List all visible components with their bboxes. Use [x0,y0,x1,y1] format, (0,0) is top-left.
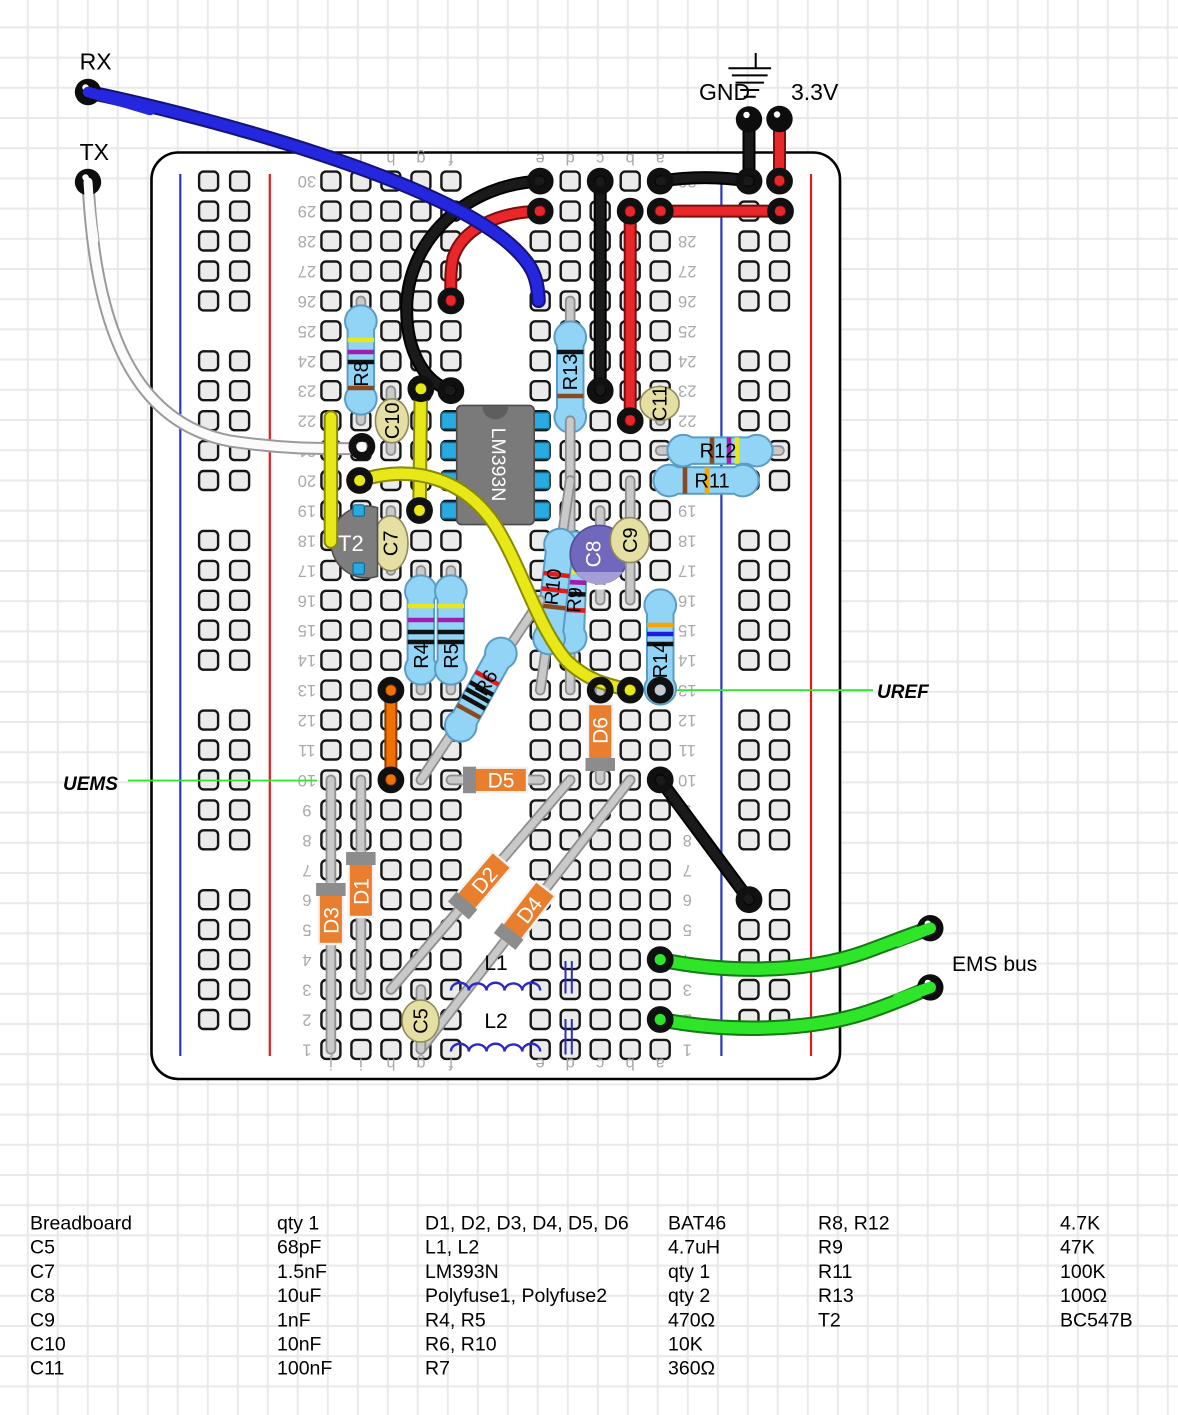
svg-text:f: f [448,1055,453,1073]
svg-text:17: 17 [678,561,696,579]
svg-text:22: 22 [298,412,316,430]
svg-text:i: i [359,1055,363,1073]
svg-text:19: 19 [678,502,696,520]
svg-text:BAT46: BAT46 [668,1213,726,1235]
svg-text:28: 28 [298,232,316,250]
svg-text:22: 22 [678,412,696,430]
svg-text:a: a [655,150,665,168]
svg-text:12: 12 [678,711,696,729]
svg-text:15: 15 [678,621,696,639]
svg-text:C11: C11 [30,1358,64,1380]
svg-text:R14: R14 [650,642,672,679]
svg-text:30: 30 [298,172,316,190]
svg-text:8: 8 [302,831,311,849]
svg-text:C9: C9 [620,527,642,553]
svg-text:b: b [626,1055,635,1073]
svg-text:qty 1: qty 1 [668,1261,710,1283]
svg-text:e: e [536,1055,545,1073]
svg-text:R8, R12: R8, R12 [818,1213,890,1235]
svg-text:17: 17 [298,561,316,579]
svg-text:UREF: UREF [877,682,930,703]
svg-text:23: 23 [678,382,696,400]
svg-text:100nF: 100nF [277,1358,332,1380]
svg-text:11: 11 [679,741,696,759]
svg-text:LM393N: LM393N [487,428,509,502]
svg-text:c: c [596,150,604,168]
svg-text:26: 26 [298,292,316,310]
svg-text:5: 5 [302,921,311,939]
svg-text:27: 27 [298,262,316,280]
svg-text:L2: L2 [484,1010,507,1033]
svg-text:1nF: 1nF [277,1309,311,1331]
svg-text:4: 4 [302,951,311,969]
svg-text:4.7uH: 4.7uH [668,1237,720,1259]
svg-text:26: 26 [678,292,696,310]
svg-text:Polyfuse1, Polyfuse2: Polyfuse1, Polyfuse2 [425,1285,607,1307]
svg-text:C11: C11 [650,386,672,421]
svg-text:R7: R7 [425,1358,450,1380]
svg-text:3: 3 [683,981,692,999]
svg-text:16: 16 [678,591,696,609]
svg-text:R11: R11 [694,471,729,493]
svg-text:D1: D1 [350,878,373,905]
svg-text:L1, L2: L1, L2 [425,1237,479,1259]
svg-text:18: 18 [678,531,696,549]
svg-text:10K: 10K [668,1334,703,1356]
svg-text:C10: C10 [382,402,404,439]
svg-text:C9: C9 [30,1309,55,1331]
svg-text:C7: C7 [30,1261,55,1283]
svg-text:1: 1 [302,1040,311,1058]
svg-text:qty 2: qty 2 [668,1285,710,1307]
svg-text:C8: C8 [30,1285,55,1307]
svg-text:68pF: 68pF [277,1237,322,1259]
svg-text:T2: T2 [338,531,364,556]
svg-text:D5: D5 [488,769,515,792]
svg-text:R4: R4 [411,643,433,669]
svg-text:RX: RX [80,48,112,74]
svg-text:47K: 47K [1060,1237,1095,1259]
svg-text:b: b [626,150,635,168]
svg-text:c: c [596,1055,604,1073]
svg-text:TX: TX [80,139,109,165]
svg-text:UEMS: UEMS [63,774,118,795]
svg-text:D3: D3 [320,907,343,934]
svg-text:j: j [329,1055,334,1073]
svg-text:16: 16 [298,591,316,609]
svg-text:C7: C7 [381,531,403,557]
svg-text:19: 19 [298,502,316,520]
svg-text:C10: C10 [30,1334,66,1356]
svg-text:3: 3 [302,981,311,999]
svg-text:470Ω: 470Ω [668,1309,715,1331]
svg-text:e: e [536,150,545,168]
svg-text:R4, R5: R4, R5 [425,1309,486,1331]
svg-text:GND: GND [699,79,750,105]
svg-text:8: 8 [683,831,692,849]
svg-text:qty 1: qty 1 [277,1213,319,1235]
svg-text:7: 7 [302,861,311,879]
svg-text:25: 25 [678,322,696,340]
svg-text:1.5nF: 1.5nF [277,1261,327,1283]
svg-text:25: 25 [298,322,316,340]
svg-text:R13: R13 [818,1285,854,1307]
svg-text:28: 28 [678,232,696,250]
svg-text:C8: C8 [583,541,606,568]
svg-text:Breadboard: Breadboard [30,1213,132,1235]
svg-text:15: 15 [298,621,316,639]
svg-text:EMS bus: EMS bus [952,953,1037,976]
svg-text:a: a [655,1055,665,1073]
svg-text:9: 9 [302,801,311,819]
svg-text:1: 1 [683,1040,692,1058]
svg-text:18: 18 [298,531,316,549]
svg-text:29: 29 [298,202,316,220]
svg-text:14: 14 [298,651,316,669]
svg-text:h: h [386,1055,395,1073]
svg-text:d: d [566,150,575,168]
svg-text:2: 2 [302,1011,311,1029]
svg-text:27: 27 [678,262,696,280]
svg-text:12: 12 [298,711,316,729]
svg-text:23: 23 [298,382,316,400]
svg-text:R8: R8 [351,361,373,387]
svg-text:10uF: 10uF [277,1285,322,1307]
svg-text:R11: R11 [818,1261,852,1283]
svg-text:R5: R5 [441,643,463,669]
svg-text:5: 5 [683,921,692,939]
svg-text:24: 24 [298,352,316,370]
svg-text:R9: R9 [818,1237,843,1259]
svg-text:100Ω: 100Ω [1060,1285,1107,1307]
svg-text:D6: D6 [590,717,613,744]
svg-text:T2: T2 [818,1309,841,1331]
svg-text:g: g [416,1055,425,1073]
svg-text:L1: L1 [484,952,507,975]
svg-text:10: 10 [678,771,696,789]
svg-text:4.7K: 4.7K [1060,1213,1100,1235]
svg-text:C5: C5 [411,1008,433,1034]
svg-text:g: g [416,150,425,168]
svg-text:h: h [386,150,395,168]
svg-text:7: 7 [683,861,692,879]
svg-text:100K: 100K [1060,1261,1106,1283]
svg-text:C5: C5 [30,1237,55,1259]
svg-text:14: 14 [678,651,696,669]
svg-text:D1, D2, D3, D4, D5, D6: D1, D2, D3, D4, D5, D6 [425,1213,629,1235]
svg-text:f: f [448,150,453,168]
svg-text:6: 6 [302,891,311,909]
svg-text:11: 11 [298,741,315,759]
svg-text:360Ω: 360Ω [668,1358,715,1380]
svg-text:24: 24 [678,352,696,370]
svg-text:10nF: 10nF [277,1334,322,1356]
svg-text:BC547B: BC547B [1060,1309,1133,1331]
svg-text:3.3V: 3.3V [791,79,839,105]
svg-text:R12: R12 [700,441,737,463]
svg-text:13: 13 [298,681,316,699]
svg-text:R13: R13 [560,354,582,391]
svg-text:LM393N: LM393N [425,1261,499,1283]
svg-text:20: 20 [298,472,316,490]
svg-text:6: 6 [683,891,692,909]
svg-text:R6, R10: R6, R10 [425,1334,497,1356]
svg-text:d: d [566,1055,575,1073]
